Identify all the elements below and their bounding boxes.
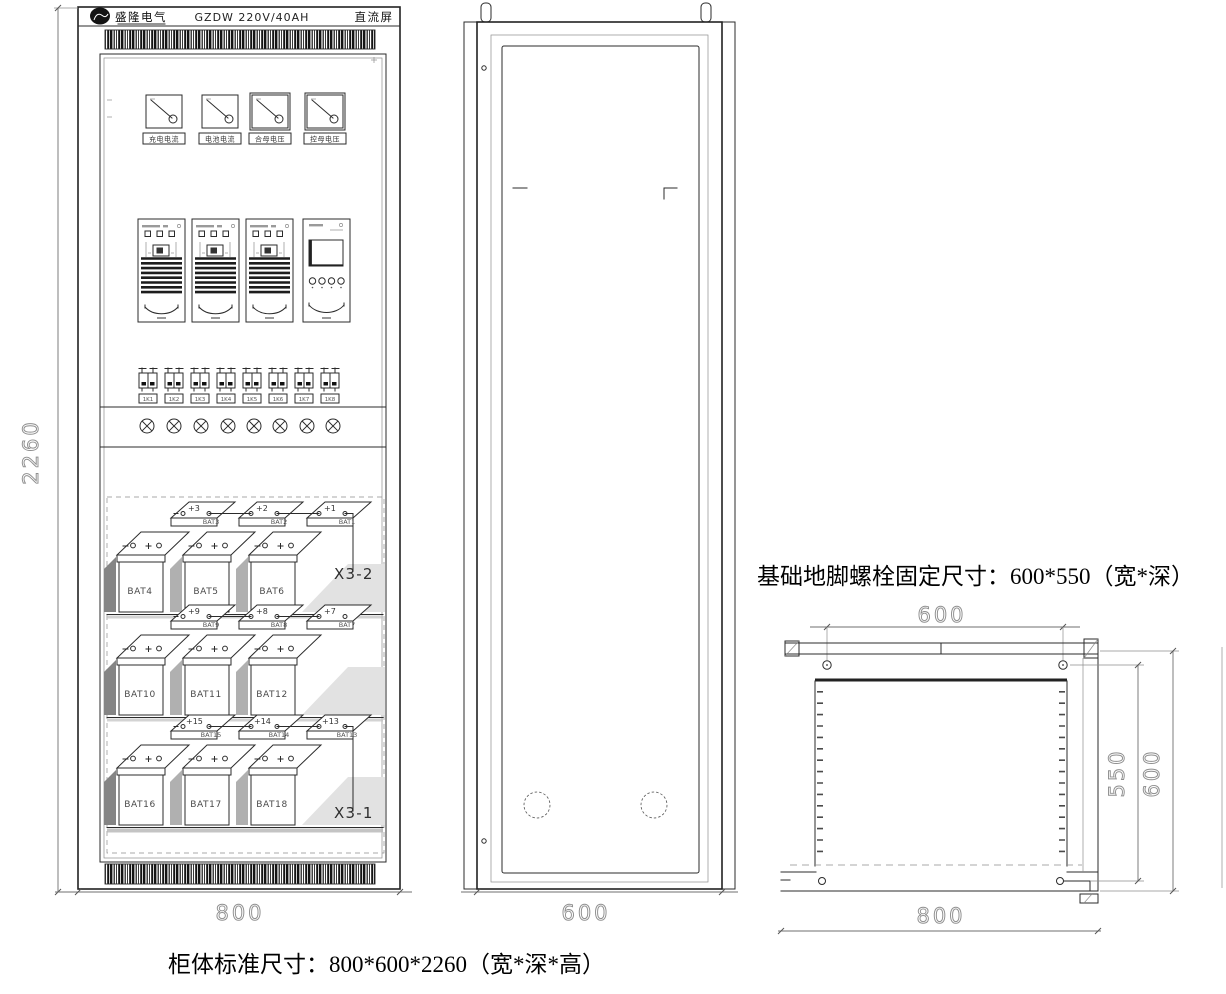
bolt-width-dim-text: 600	[917, 603, 966, 627]
indicator-lamp-7-icon	[300, 419, 314, 433]
breaker-label-7: 1K7	[299, 397, 310, 403]
overall-width-dim-text: 800	[916, 904, 965, 928]
battery-flat-label: BAT8	[271, 621, 288, 629]
connector-label-x3-2: X3-2	[334, 565, 374, 583]
side-view: 600	[461, 3, 738, 925]
terminal-label: +2	[256, 504, 268, 513]
cable-gland-hole-right	[641, 792, 667, 818]
battery-label: BAT16	[124, 800, 156, 810]
front-view: 盛隆电气 GZDW 220V/40AH 直流屏 充电电流 电池电流 合母电压	[19, 5, 412, 925]
hinge-screw-bottom	[482, 839, 486, 843]
side-strip-left	[464, 22, 477, 889]
side-door-panel	[502, 46, 699, 873]
meter-label-3: 合母电压	[255, 135, 285, 144]
breaker-6-icon	[269, 368, 287, 391]
hinge-screw-top	[482, 66, 486, 70]
panel-frame	[100, 54, 386, 862]
terminal-label: +8	[256, 607, 268, 616]
cable-gland-hole-left	[524, 792, 550, 818]
shadow-shape	[170, 557, 182, 612]
shadow-shape	[302, 667, 385, 715]
terminal-label: +14	[254, 717, 271, 726]
breaker-label-1: 1K1	[143, 397, 154, 403]
indicator-lamp-4-icon	[221, 419, 235, 433]
anchor-bolt-center	[826, 664, 828, 666]
title-block: 盛隆电气 GZDW 220V/40AH 直流屏	[78, 8, 400, 27]
bolt-depth-dim-text: 550	[1105, 748, 1129, 797]
shadow-shape	[104, 557, 116, 612]
voltmeter-2-icon	[307, 95, 343, 128]
battery-label: BAT5	[193, 587, 218, 597]
indicator-lamp-5-icon	[247, 419, 261, 433]
rectifier-module-3	[246, 219, 293, 322]
breaker-label-2: 1K2	[169, 397, 180, 403]
drawing-svg: 盛隆电气 GZDW 220V/40AH 直流屏 充电电流 电池电流 合母电压	[0, 0, 1226, 994]
indicator-section	[140, 419, 340, 433]
breaker-label-5: 1K5	[247, 397, 258, 403]
breaker-label-6: 1K6	[273, 397, 284, 403]
terminal-label: +9	[188, 607, 200, 616]
breaker-label-4: 1K4	[221, 397, 232, 403]
breaker-7-icon	[295, 368, 313, 391]
rectifier-module-2	[192, 219, 239, 322]
battery-tall	[249, 532, 321, 612]
top-vent-grille	[105, 30, 375, 49]
terminal-label: +15	[186, 717, 203, 726]
cabinet-size-note: 柜体标准尺寸：800*600*2260（宽*深*高）	[168, 952, 605, 977]
battery-flat-label: BAT2	[271, 518, 288, 526]
foot-bolt-left-icon	[819, 878, 826, 885]
breaker-1-icon	[139, 368, 157, 391]
model-number: GZDW 220V/40AH	[195, 11, 310, 24]
shadow-shape	[236, 660, 248, 715]
anchor-bolt-note: 基础地脚螺栓固定尺寸：600*550（宽*深）	[757, 564, 1194, 589]
corner-connector-diag	[1084, 894, 1092, 903]
breaker-2-icon	[165, 368, 183, 391]
battery-flat-label: BAT14	[269, 731, 290, 739]
battery-flat-label: BAT13	[337, 731, 358, 739]
meter-label-2: 电池电流	[205, 135, 235, 144]
shadow-shape	[104, 770, 116, 825]
terminal-label: +7	[324, 607, 336, 616]
battery-label: BAT6	[259, 587, 284, 597]
lifting-eye-right-icon	[701, 3, 711, 22]
breaker-label-3: 1K3	[195, 397, 206, 403]
battery-flat-label: BAT15	[201, 731, 222, 739]
shadow-shape	[170, 660, 182, 715]
meter-label-4: 控母电压	[310, 135, 340, 144]
bottom-vent-grille	[105, 864, 375, 884]
breaker-4-icon	[217, 368, 235, 391]
side-dimensions: 600	[461, 889, 738, 925]
indicator-lamp-3-icon	[194, 419, 208, 433]
battery-shelf-shade	[107, 829, 383, 833]
rectifier-module-1	[138, 219, 185, 322]
module-section	[138, 219, 350, 322]
panel-seam-mark-right	[664, 188, 677, 199]
height-dim-text: 2260	[19, 419, 43, 484]
terminal-label: +13	[322, 717, 339, 726]
depth-dim-text: 600	[1140, 748, 1164, 797]
battery-flat-label: BAT7	[339, 621, 356, 629]
meter-label-1: 充电电流	[149, 135, 179, 144]
breaker-8-icon	[321, 368, 339, 391]
channel-end-diag	[1084, 639, 1098, 658]
side-strip-right	[722, 22, 735, 889]
anchor-bolt-center	[1062, 664, 1064, 666]
battery-flat-label: BAT9	[203, 621, 220, 629]
indicator-lamp-2-icon	[167, 419, 181, 433]
ammeter-2-icon	[202, 95, 238, 128]
cad-drawing-canvas: 盛隆电气 GZDW 220V/40AH 直流屏 充电电流 电池电流 合母电压	[0, 0, 1226, 994]
product-name: 直流屏	[355, 10, 394, 24]
battery-section: +3 +2 +1 BAT3 BAT2 BAT1 BAT4 BAT5 BAT6 X…	[104, 497, 385, 853]
meter-section: 充电电流 电池电流 合母电压 控母电压	[143, 93, 346, 144]
battery-row-2: +9 +8 +7 BAT9 BAT8 BAT7 BAT10 BAT11 BAT1…	[104, 605, 385, 722]
shadow-shape	[236, 770, 248, 825]
battery-label: BAT17	[190, 800, 222, 810]
width-dim-text: 800	[215, 901, 264, 925]
shadow-shape	[170, 770, 182, 825]
breaker-section: 1K1 1K2 1K3 1K4 1K5 1K6 1K7 1K8	[139, 368, 339, 403]
indicator-lamp-1-icon	[140, 419, 154, 433]
voltmeter-1-icon	[252, 95, 288, 128]
battery-row-1: +3 +2 +1 BAT3 BAT2 BAT1 BAT4 BAT5 BAT6 X…	[104, 502, 385, 619]
depth-dim-text: 600	[561, 901, 610, 925]
shadow-shape	[236, 557, 248, 612]
company-name: 盛隆电气	[115, 10, 167, 24]
top-view: 基础地脚螺栓固定尺寸：600*550（宽*深） 600	[757, 564, 1222, 934]
terminal-label: +1	[324, 504, 336, 513]
battery-label: BAT10	[124, 690, 156, 700]
battery-row-3: +15 +14 +13 BAT15 BAT14 BAT13 BAT16 BAT1…	[104, 715, 385, 833]
breaker-label-8: 1K8	[325, 397, 336, 403]
battery-tall	[249, 745, 321, 825]
side-inner-gray	[491, 35, 708, 882]
battery-label: BAT12	[256, 690, 288, 700]
battery-tall	[249, 635, 321, 715]
breaker-5-icon	[243, 368, 261, 391]
lifting-eye-left-icon	[481, 3, 491, 22]
connector-label-x3-1: X3-1	[334, 804, 374, 822]
foot-bolt-right-icon	[1057, 878, 1064, 885]
ammeter-1-icon	[146, 95, 182, 128]
battery-flat-label: BAT3	[203, 518, 220, 526]
battery-flat-label: BAT1	[339, 518, 356, 526]
battery-label: BAT11	[190, 690, 222, 700]
corner-connector-box	[1080, 894, 1098, 903]
battery-label: BAT4	[127, 587, 152, 597]
breaker-3-icon	[191, 368, 209, 391]
shadow-shape	[104, 660, 116, 715]
battery-label: BAT18	[256, 800, 288, 810]
monitor-module	[303, 219, 350, 322]
terminal-label: +3	[188, 504, 200, 513]
indicator-lamp-6-icon	[273, 419, 287, 433]
indicator-lamp-8-icon	[326, 419, 340, 433]
side-outer-frame	[477, 22, 722, 889]
